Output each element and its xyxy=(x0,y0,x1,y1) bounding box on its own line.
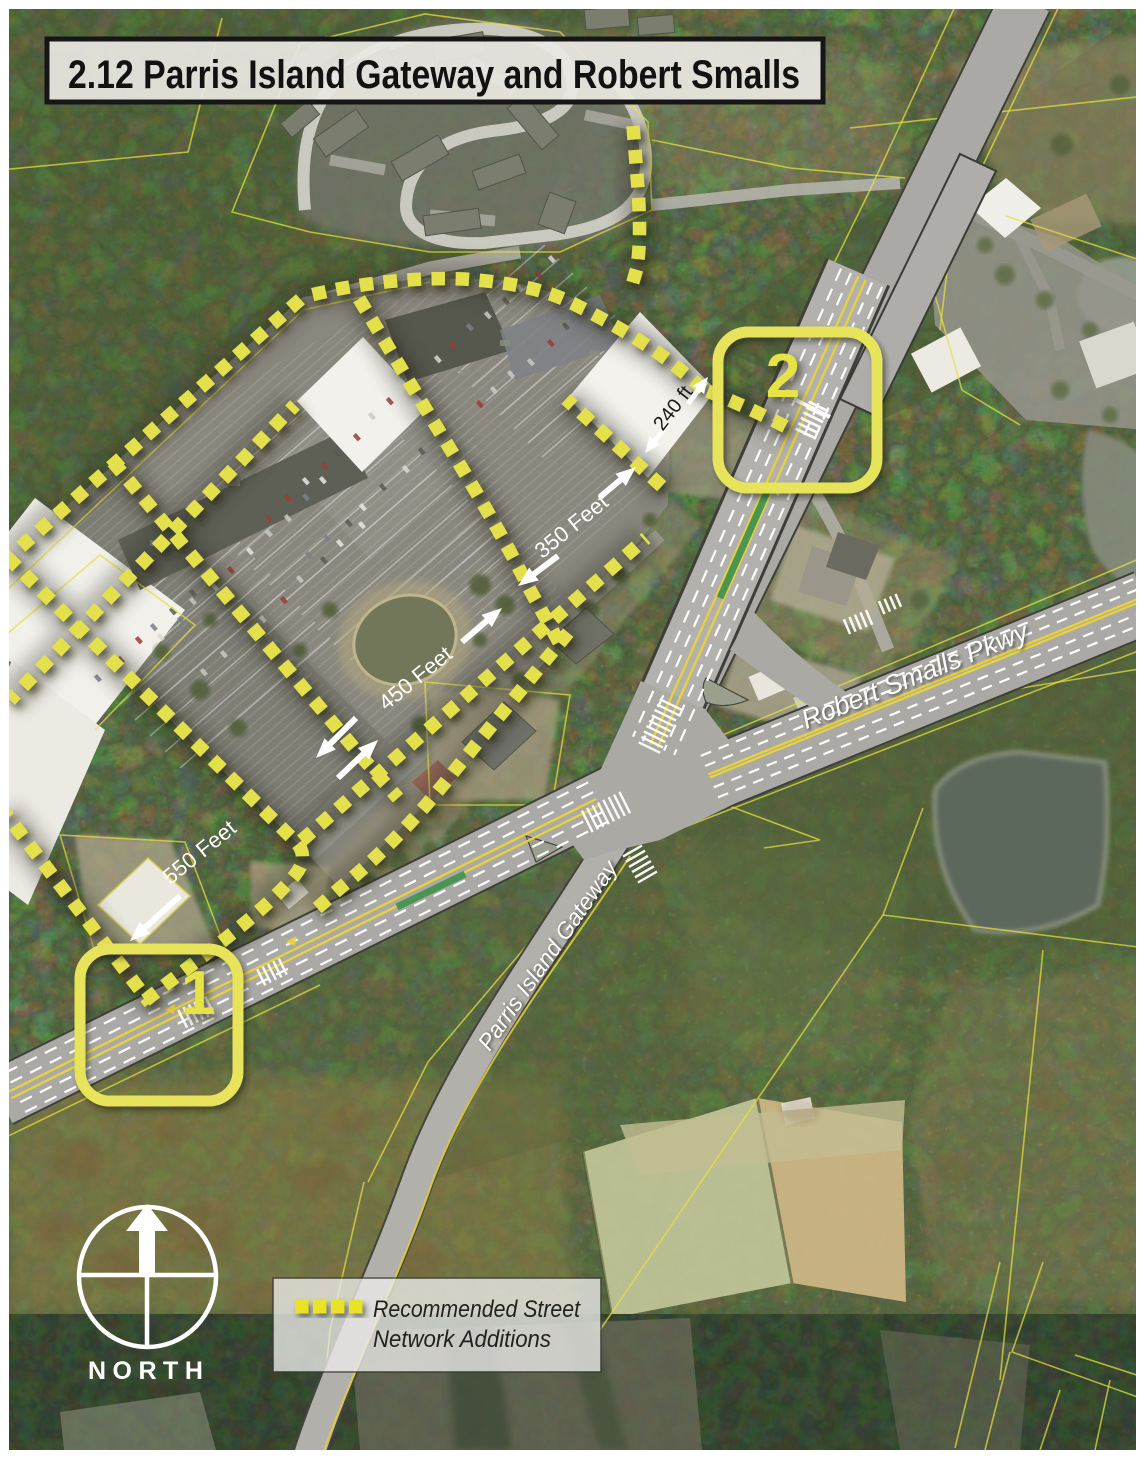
svg-text:Network Additions: Network Additions xyxy=(373,1326,551,1353)
svg-text:Recommended Street: Recommended Street xyxy=(373,1296,581,1323)
svg-text:1: 1 xyxy=(181,959,215,1028)
svg-text:2.12 Parris Island Gateway an: 2.12 Parris Island Gateway and Robert Sm… xyxy=(68,53,800,97)
svg-text:NORTH: NORTH xyxy=(88,1357,209,1385)
svg-text:2: 2 xyxy=(766,342,800,411)
